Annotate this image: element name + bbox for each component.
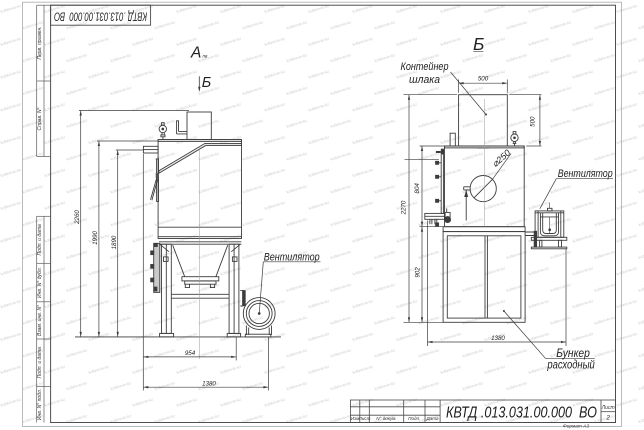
svg-text:КВТД .013.031.00.000 ВО: КВТД .013.031.00.000 ВО bbox=[446, 405, 597, 422]
svg-text:954: 954 bbox=[185, 350, 196, 357]
svg-text:А: А bbox=[190, 45, 201, 62]
svg-text:Дата: Дата bbox=[425, 416, 439, 421]
svg-text:Б: Б bbox=[473, 34, 484, 54]
svg-text:804: 804 bbox=[414, 183, 421, 194]
svg-text:пв: пв bbox=[203, 54, 208, 59]
svg-text:Инв. N° подл.: Инв. N° подл. bbox=[37, 389, 43, 420]
svg-text:Лист: Лист bbox=[601, 405, 615, 411]
svg-text:1890: 1890 bbox=[111, 235, 118, 249]
svg-text:расходный: расходный bbox=[547, 359, 596, 371]
svg-text:500: 500 bbox=[530, 116, 537, 127]
svg-text:шлака: шлака bbox=[409, 74, 440, 86]
svg-text:Инв. N° дубл.: Инв. N° дубл. bbox=[37, 267, 43, 298]
svg-text:2: 2 bbox=[605, 415, 610, 422]
svg-text:500: 500 bbox=[478, 76, 489, 83]
svg-text:Подп. и дата: Подп. и дата bbox=[37, 347, 43, 379]
svg-text:1380: 1380 bbox=[202, 380, 216, 387]
svg-text:Перв. примен.: Перв. примен. bbox=[37, 26, 43, 59]
svg-text:КВТД .013.031.00.000 ВО: КВТД .013.031.00.000 ВО bbox=[54, 9, 147, 21]
svg-text:2270: 2270 bbox=[400, 200, 407, 215]
svg-text:Формат А3: Формат А3 bbox=[563, 423, 590, 429]
svg-text:1380: 1380 bbox=[491, 335, 505, 342]
svg-text:Лист: Лист bbox=[358, 416, 371, 421]
svg-text:Контейнер: Контейнер bbox=[401, 61, 449, 73]
svg-text:Справ. N°: Справ. N° bbox=[37, 108, 43, 131]
svg-text:N° докум.: N° докум. bbox=[376, 416, 396, 421]
svg-text:Подп. и дата: Подп. и дата bbox=[37, 224, 43, 256]
svg-text:Подп.: Подп. bbox=[408, 416, 420, 421]
svg-text:1990: 1990 bbox=[92, 231, 99, 245]
svg-text:Взам. инв. N°: Взам. инв. N° bbox=[37, 305, 43, 336]
svg-text:Б: Б bbox=[202, 75, 211, 91]
svg-text:2260: 2260 bbox=[74, 210, 81, 225]
svg-text:902: 902 bbox=[414, 267, 421, 278]
